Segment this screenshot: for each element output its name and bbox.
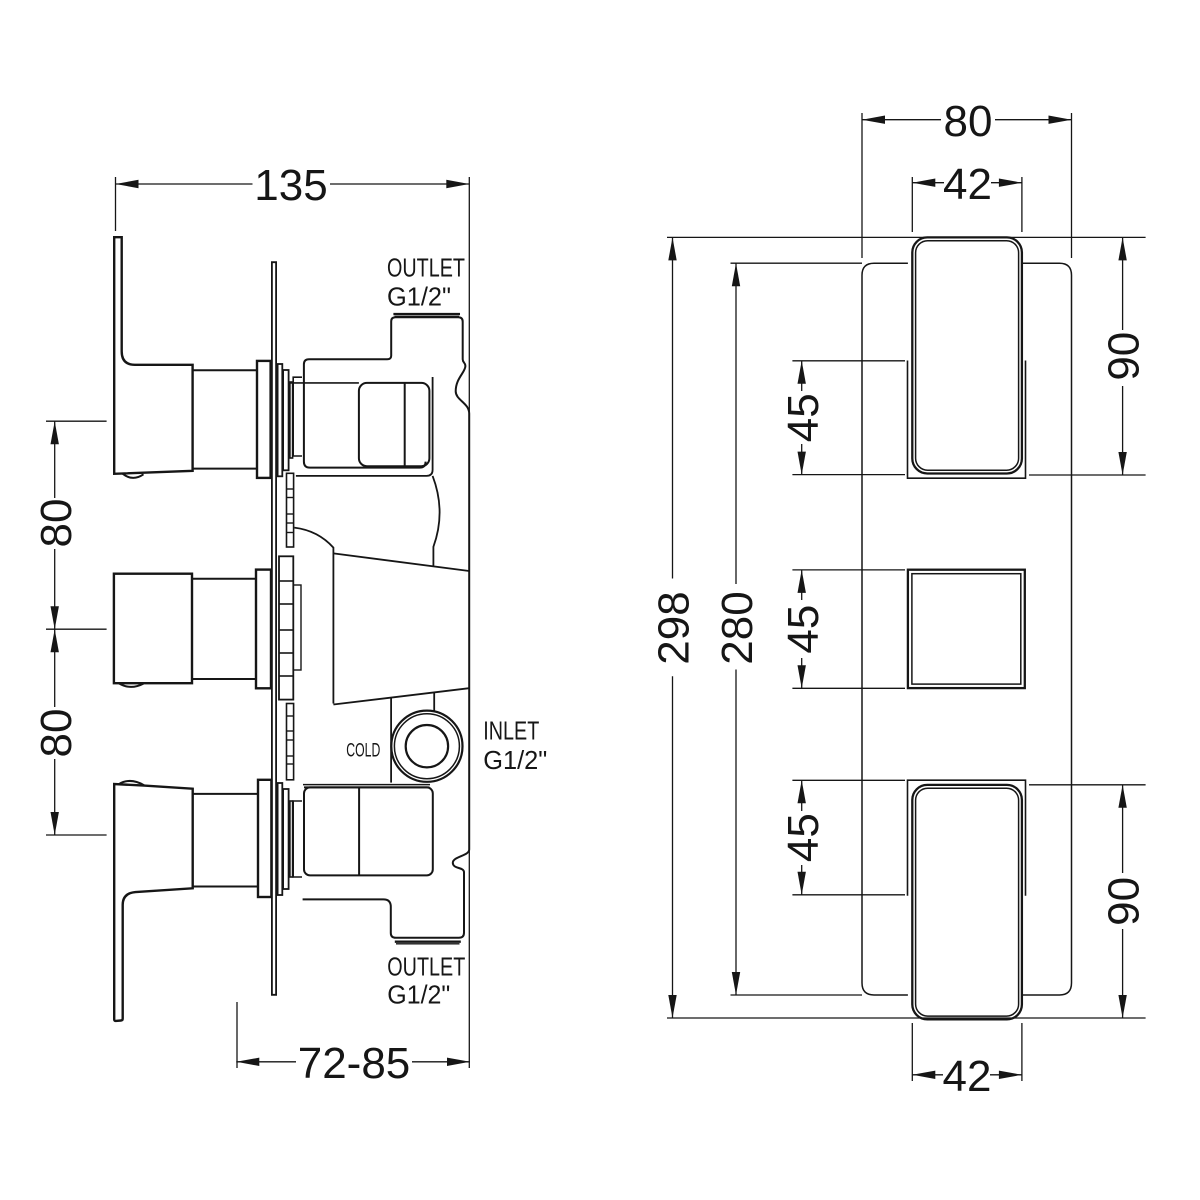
svg-text:COLD: COLD — [346, 741, 380, 762]
svg-text:80: 80 — [32, 499, 81, 548]
svg-text:280: 280 — [713, 591, 762, 664]
svg-text:45: 45 — [779, 813, 828, 862]
svg-text:OUTLET: OUTLET — [387, 951, 465, 981]
svg-text:90: 90 — [1100, 332, 1149, 381]
svg-text:G1/2": G1/2" — [387, 980, 450, 1010]
svg-text:298: 298 — [650, 591, 699, 664]
svg-text:72-85: 72-85 — [298, 1039, 411, 1088]
svg-text:45: 45 — [779, 605, 828, 654]
svg-text:45: 45 — [779, 393, 828, 442]
svg-text:G1/2": G1/2" — [387, 282, 451, 312]
svg-text:42: 42 — [943, 160, 992, 209]
svg-text:INLET: INLET — [483, 715, 539, 745]
svg-text:42: 42 — [943, 1052, 992, 1101]
svg-text:135: 135 — [254, 161, 327, 210]
svg-text:90: 90 — [1100, 877, 1149, 926]
svg-text:OUTLET: OUTLET — [387, 253, 465, 283]
svg-text:G1/2": G1/2" — [483, 745, 547, 775]
svg-text:80: 80 — [944, 97, 993, 146]
svg-text:80: 80 — [32, 709, 81, 758]
